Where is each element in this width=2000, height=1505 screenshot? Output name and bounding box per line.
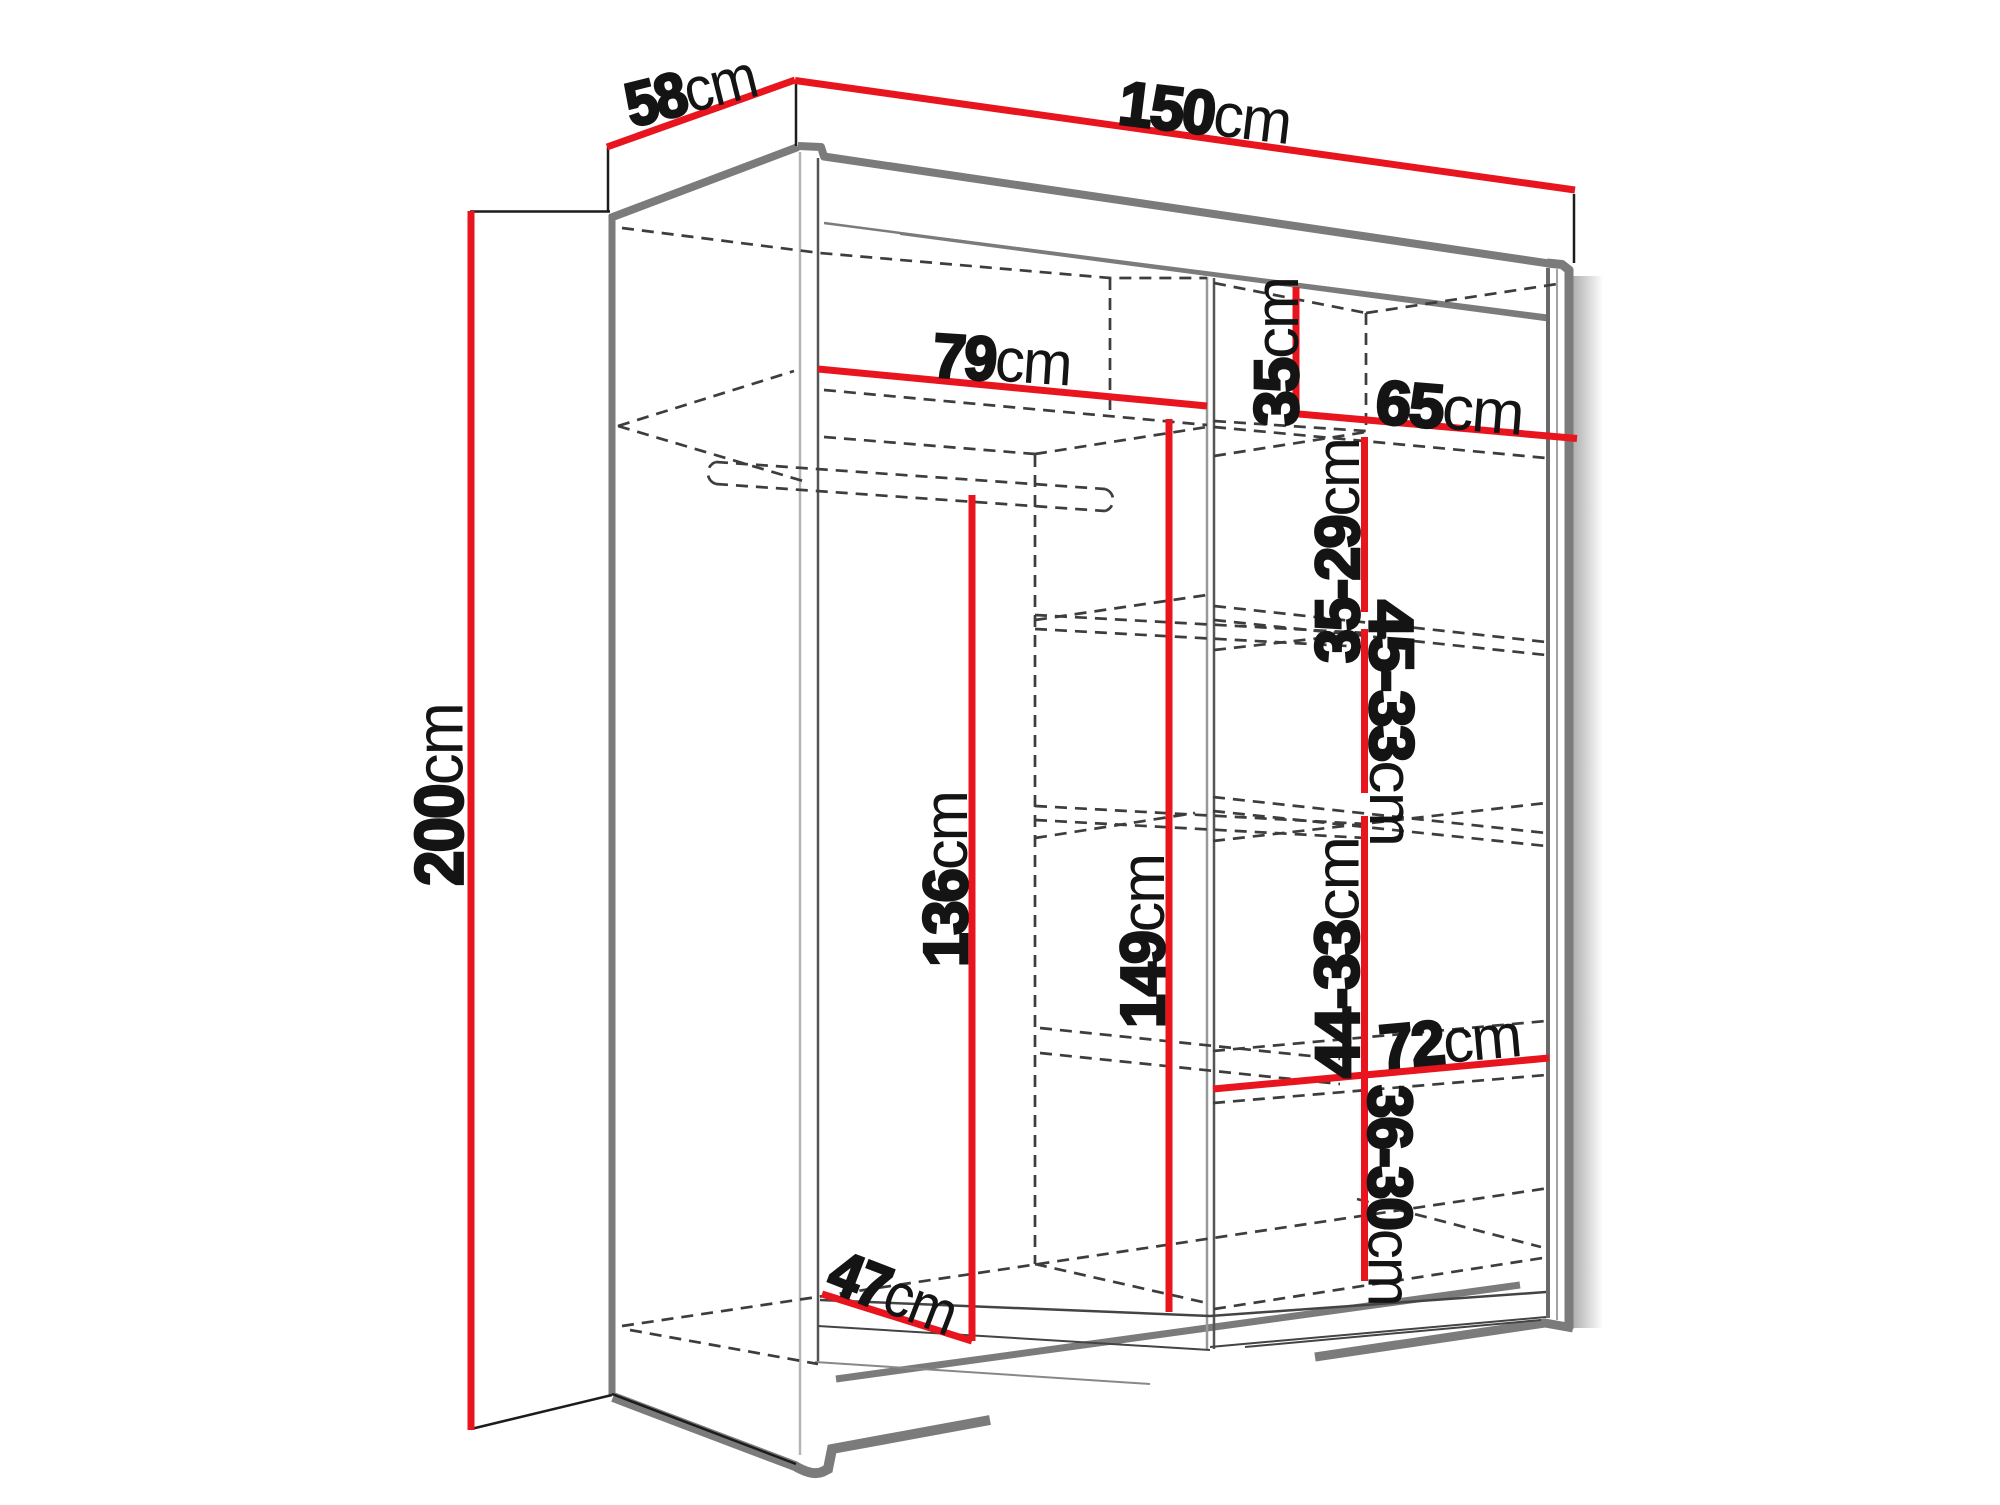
svg-text:65cm: 65cm [1373,368,1525,449]
svg-text:45-33cm: 45-33cm [1356,600,1425,845]
svg-text:36-30cm: 36-30cm [1355,1085,1424,1305]
svg-text:79cm: 79cm [931,321,1073,399]
svg-text:149cm: 149cm [1109,855,1178,1028]
svg-text:136cm: 136cm [912,792,981,967]
svg-text:44-33cm: 44-33cm [1304,838,1373,1078]
svg-text:200cm: 200cm [402,704,478,886]
svg-text:72cm: 72cm [1376,1001,1523,1082]
svg-text:35cm: 35cm [1243,278,1312,426]
